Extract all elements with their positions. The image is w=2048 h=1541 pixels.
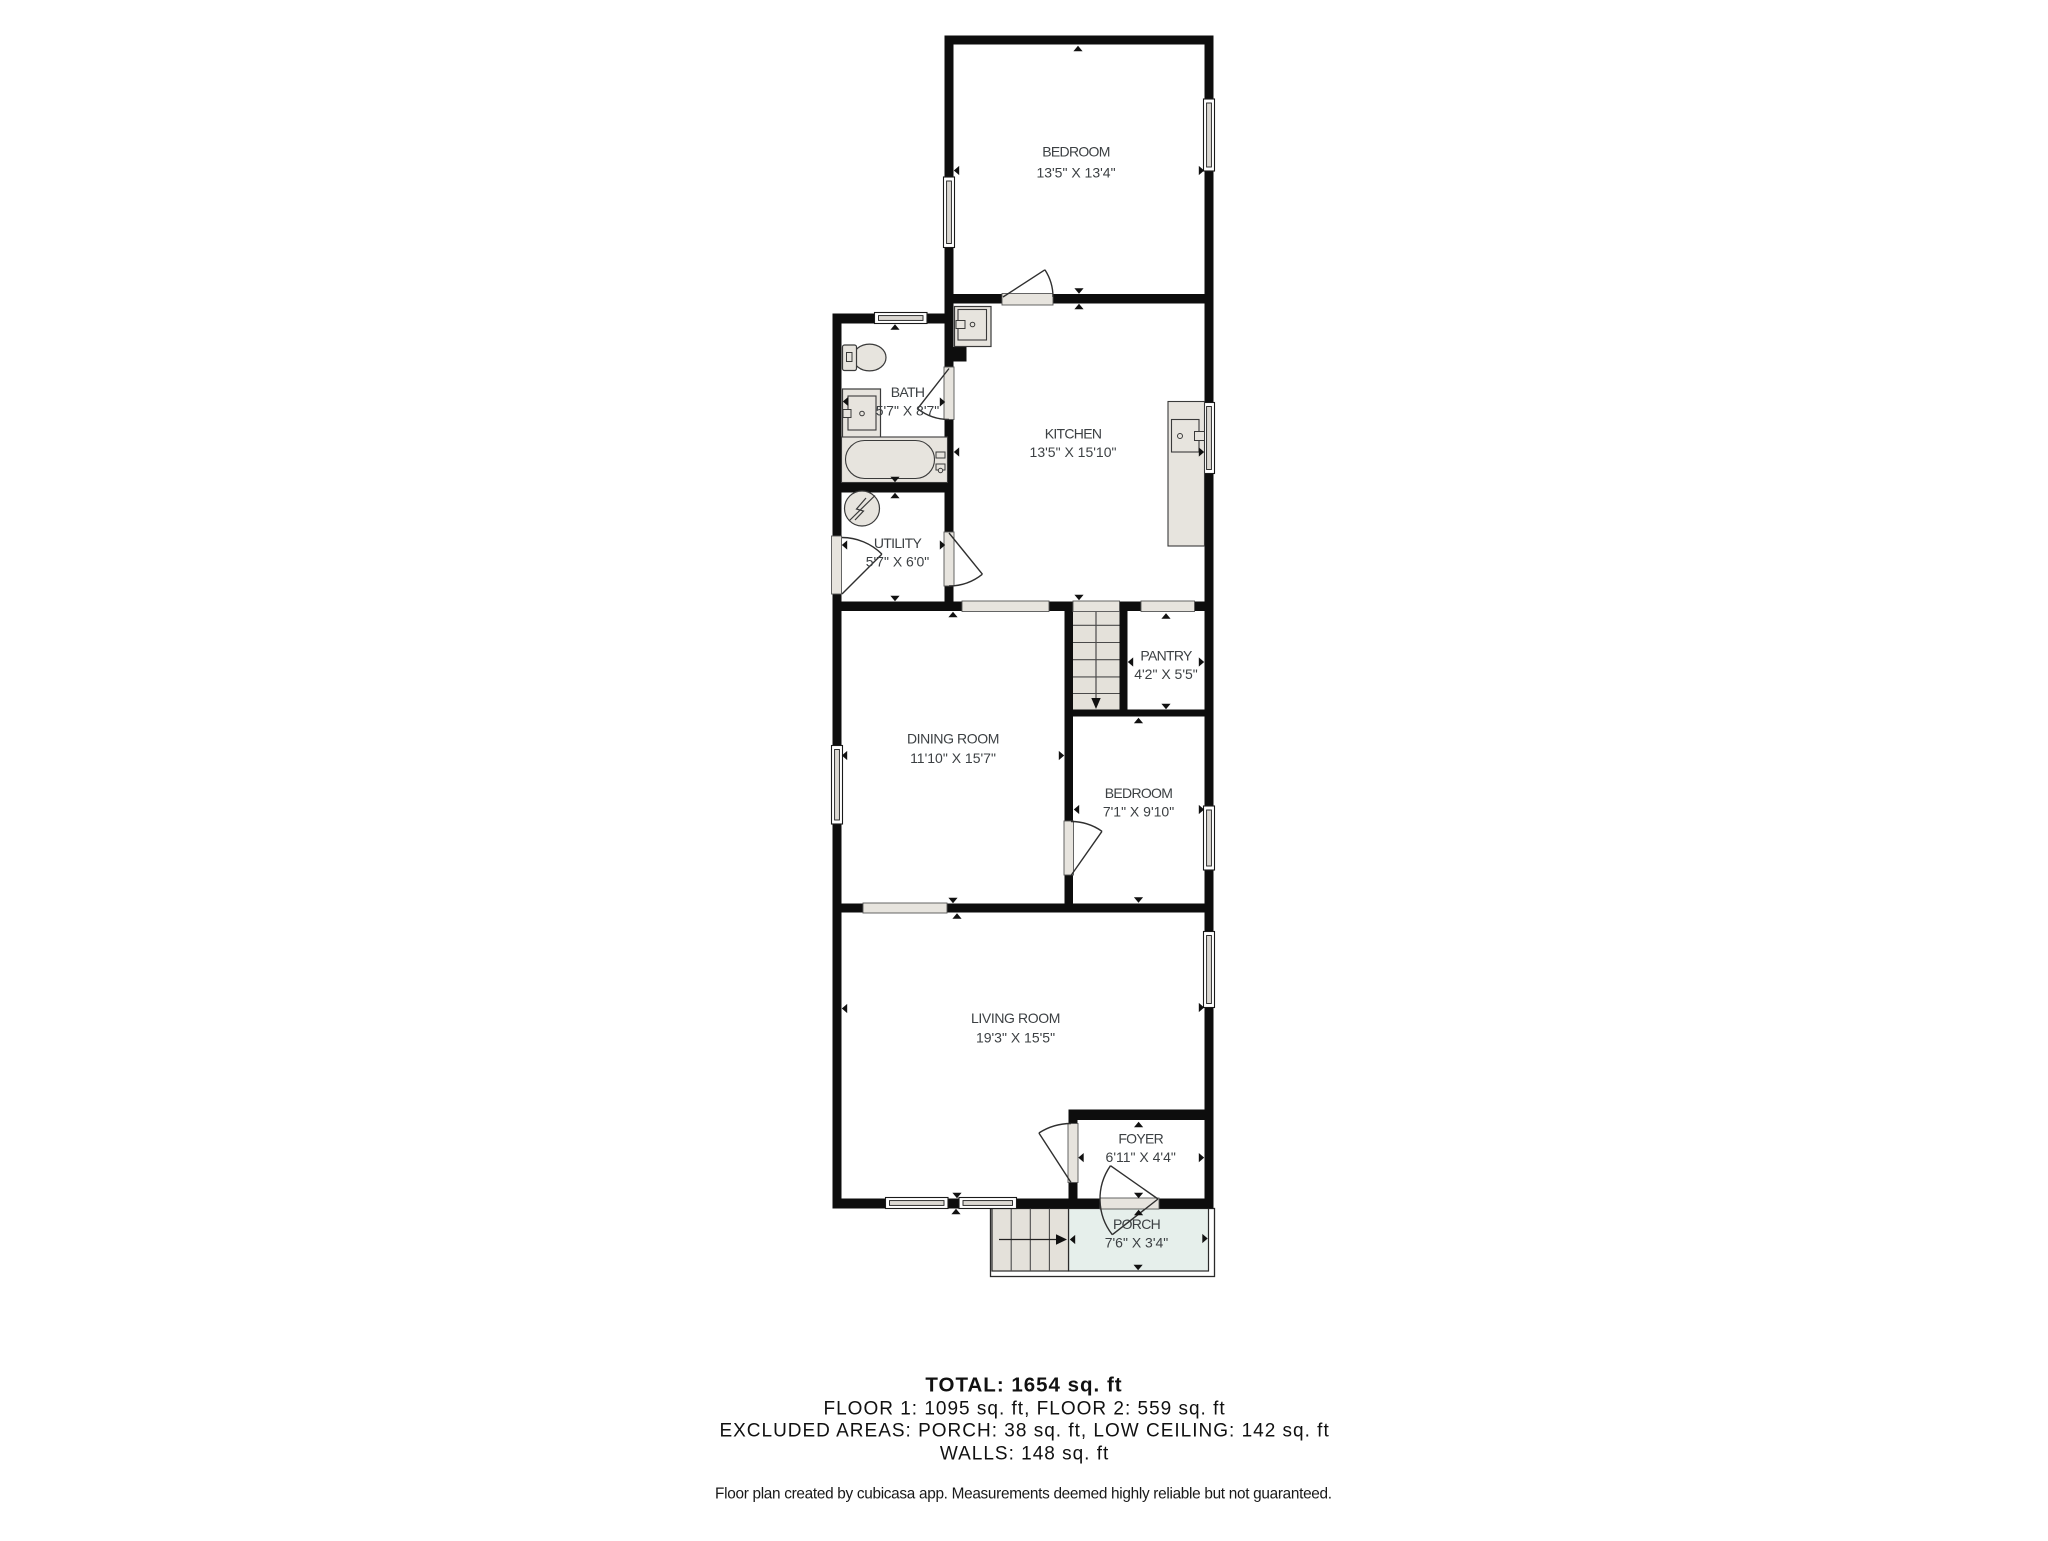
- svg-text:7'6" X 3'4": 7'6" X 3'4": [1105, 1235, 1169, 1251]
- svg-text:LIVING ROOM: LIVING ROOM: [971, 1010, 1060, 1026]
- svg-text:13'5" X 15'10": 13'5" X 15'10": [1030, 444, 1117, 460]
- svg-text:5'7" X 6'0": 5'7" X 6'0": [866, 554, 930, 570]
- svg-text:FLOOR 1: 1095 sq. ft, FLOOR 2:: FLOOR 1: 1095 sq. ft, FLOOR 2: 559 sq. f…: [824, 1398, 1226, 1419]
- svg-text:BEDROOM: BEDROOM: [1042, 144, 1109, 160]
- svg-text:UTILITY: UTILITY: [874, 535, 923, 551]
- svg-text:BEDROOM: BEDROOM: [1105, 785, 1172, 801]
- svg-text:FOYER: FOYER: [1118, 1131, 1163, 1147]
- svg-text:7'1" X 9'10": 7'1" X 9'10": [1103, 804, 1174, 820]
- svg-text:TOTAL: 1654 sq. ft: TOTAL: 1654 sq. ft: [925, 1374, 1122, 1397]
- svg-text:Floor plan created by cubicasa: Floor plan created by cubicasa app. Meas…: [715, 1485, 1332, 1502]
- svg-text:BATH: BATH: [891, 384, 925, 400]
- svg-text:19'3" X 15'5": 19'3" X 15'5": [976, 1030, 1055, 1046]
- svg-text:PANTRY: PANTRY: [1140, 648, 1193, 664]
- svg-text:KITCHEN: KITCHEN: [1045, 426, 1102, 442]
- svg-text:6'11" X 4'4": 6'11" X 4'4": [1106, 1149, 1176, 1165]
- svg-text:13'5" X 13'4": 13'5" X 13'4": [1036, 165, 1115, 181]
- svg-text:EXCLUDED AREAS: PORCH: 38 sq.: EXCLUDED AREAS: PORCH: 38 sq. ft, LOW CE…: [719, 1420, 1329, 1441]
- svg-text:DINING ROOM: DINING ROOM: [907, 731, 999, 747]
- svg-text:5'7" X 8'7": 5'7" X 8'7": [876, 403, 940, 419]
- svg-text:PORCH: PORCH: [1113, 1216, 1160, 1232]
- svg-text:WALLS: 148 sq. ft: WALLS: 148 sq. ft: [940, 1444, 1109, 1465]
- svg-text:11'10" X 15'7": 11'10" X 15'7": [910, 750, 996, 766]
- svg-text:4'2" X 5'5": 4'2" X 5'5": [1134, 666, 1198, 682]
